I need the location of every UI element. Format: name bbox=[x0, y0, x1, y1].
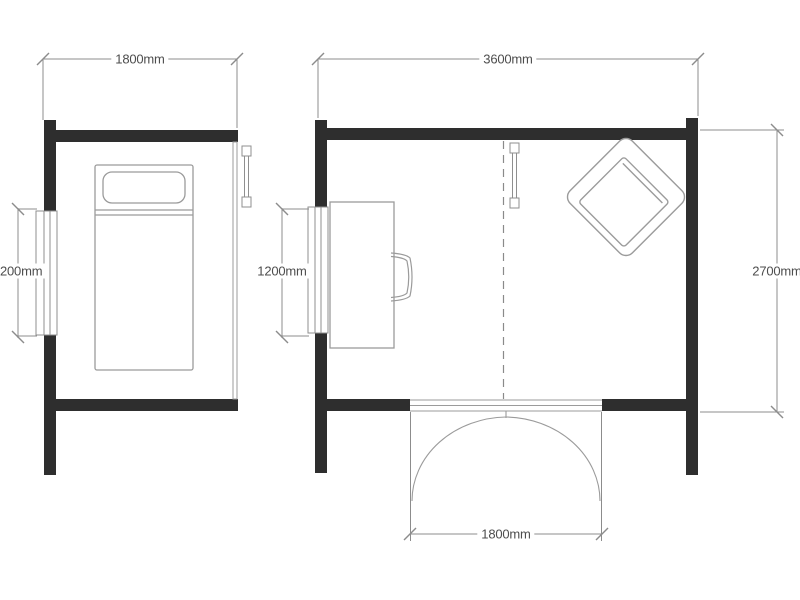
lounge-chair-outer bbox=[564, 135, 688, 259]
dim-label-door-opening: 1800mm bbox=[477, 527, 534, 542]
dim-door-opening bbox=[404, 412, 608, 541]
dim-label-large-room-depth: 2700mm bbox=[748, 264, 800, 279]
desk bbox=[330, 202, 394, 348]
wall-bottom bbox=[44, 399, 238, 411]
double-doors bbox=[410, 400, 602, 501]
wall-right bbox=[686, 118, 698, 475]
door-swing-left bbox=[412, 417, 506, 501]
wall-fixture-large-room bbox=[510, 143, 519, 208]
door-swing-right bbox=[506, 417, 600, 501]
wall-bottom-right bbox=[602, 399, 698, 411]
small-room-glazed-wall bbox=[233, 142, 237, 399]
wall-top bbox=[315, 128, 698, 140]
wall-top bbox=[44, 130, 238, 142]
wall-fixture-small-room bbox=[242, 146, 251, 207]
pillow bbox=[103, 172, 185, 203]
dim-label-small-room-width: 1800mm bbox=[111, 52, 168, 67]
floor-plan-canvas: 1800mm 200mm 3600mm 2700mm 1200mm 1800mm bbox=[0, 0, 800, 600]
bed bbox=[95, 165, 193, 370]
lounge-chair-rotated bbox=[564, 135, 688, 259]
large-room-window bbox=[308, 207, 328, 333]
plan-drawing bbox=[0, 0, 800, 600]
dim-label-small-room-window: 200mm bbox=[0, 264, 46, 279]
dim-label-large-room-window: 1200mm bbox=[253, 264, 310, 279]
wall-bottom-left bbox=[315, 399, 410, 411]
dim-label-large-room-width: 3600mm bbox=[479, 52, 536, 67]
desk-top bbox=[330, 202, 394, 348]
